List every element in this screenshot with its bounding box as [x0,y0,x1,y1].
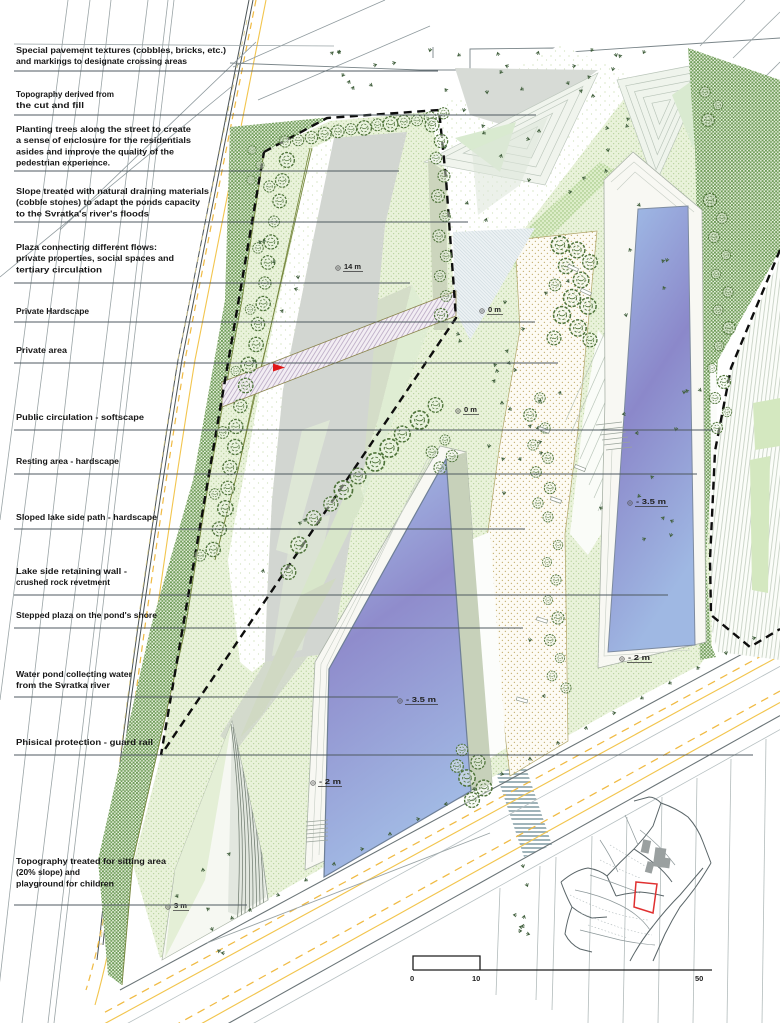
svg-text:Special pavement textures (cob: Special pavement textures (cobbles, bric… [16,46,226,55]
svg-text:from the Svratka river: from the Svratka river [16,681,110,690]
svg-text:and markings to designate cros: and markings to designate crossing areas [16,57,188,66]
svg-text:3 m: 3 m [174,901,188,910]
svg-text:Slope treated with natural dra: Slope treated with natural draining mate… [16,187,210,196]
svg-text:10: 10 [472,974,480,983]
svg-text:Public circulation - softscape: Public circulation - softscape [16,413,145,422]
svg-text:0 m: 0 m [464,405,478,414]
svg-text:Stepped plaza on the pond's sh: Stepped plaza on the pond's shore [16,611,158,620]
svg-text:Topography treated for sitting: Topography treated for sitting area [16,857,167,866]
svg-text:pedestrian experience.: pedestrian experience. [16,159,110,168]
svg-text:a sense of enclosure for the r: a sense of enclosure for the residential… [16,136,192,145]
svg-text:- 3.5 m: - 3.5 m [406,695,437,704]
svg-text:(cobble stones) to adapt the p: (cobble stones) to adapt the ponds capac… [16,198,201,207]
svg-text:the cut and fill: the cut and fill [16,101,84,110]
svg-text:asides and improve the quality: asides and improve the quality of the [16,147,175,156]
svg-text:Private area: Private area [16,346,68,355]
svg-text:- 2 m: - 2 m [628,653,651,662]
svg-text:Planting trees along the stree: Planting trees along the street to creat… [16,125,192,134]
svg-text:Topography derived from: Topography derived from [16,90,114,99]
svg-text:50: 50 [695,974,703,983]
svg-text:- 3.5 m: - 3.5 m [636,497,667,506]
svg-text:private properties, social spa: private properties, social spaces and [16,254,174,263]
svg-text:Water pond collecting water: Water pond collecting water [16,670,132,679]
svg-text:0: 0 [410,974,414,983]
svg-text:Lake side retaining wall -: Lake side retaining wall - [16,567,127,576]
svg-text:Sloped lake side path - hardsc: Sloped lake side path - hardscape [16,513,158,522]
svg-text:(20% slope) and: (20% slope) and [16,868,80,877]
svg-text:playground for children: playground for children [16,879,114,888]
svg-text:to the Svratka's river's flood: to the Svratka's river's floods [16,209,150,218]
svg-text:0 m: 0 m [488,305,502,314]
svg-text:Plaza connecting different flo: Plaza connecting different flows: [16,243,157,252]
svg-text:- 2 m: - 2 m [319,777,342,786]
svg-text:crushed rock revetment: crushed rock revetment [16,578,110,587]
svg-text:Resting area - hardscape: Resting area - hardscape [16,457,120,466]
svg-text:14 m: 14 m [344,262,362,271]
svg-text:Private Hardscape: Private Hardscape [16,307,90,316]
svg-text:Phisical protection - guard ra: Phisical protection - guard rail [16,738,153,747]
svg-text:tertiary circulation: tertiary circulation [16,265,102,274]
